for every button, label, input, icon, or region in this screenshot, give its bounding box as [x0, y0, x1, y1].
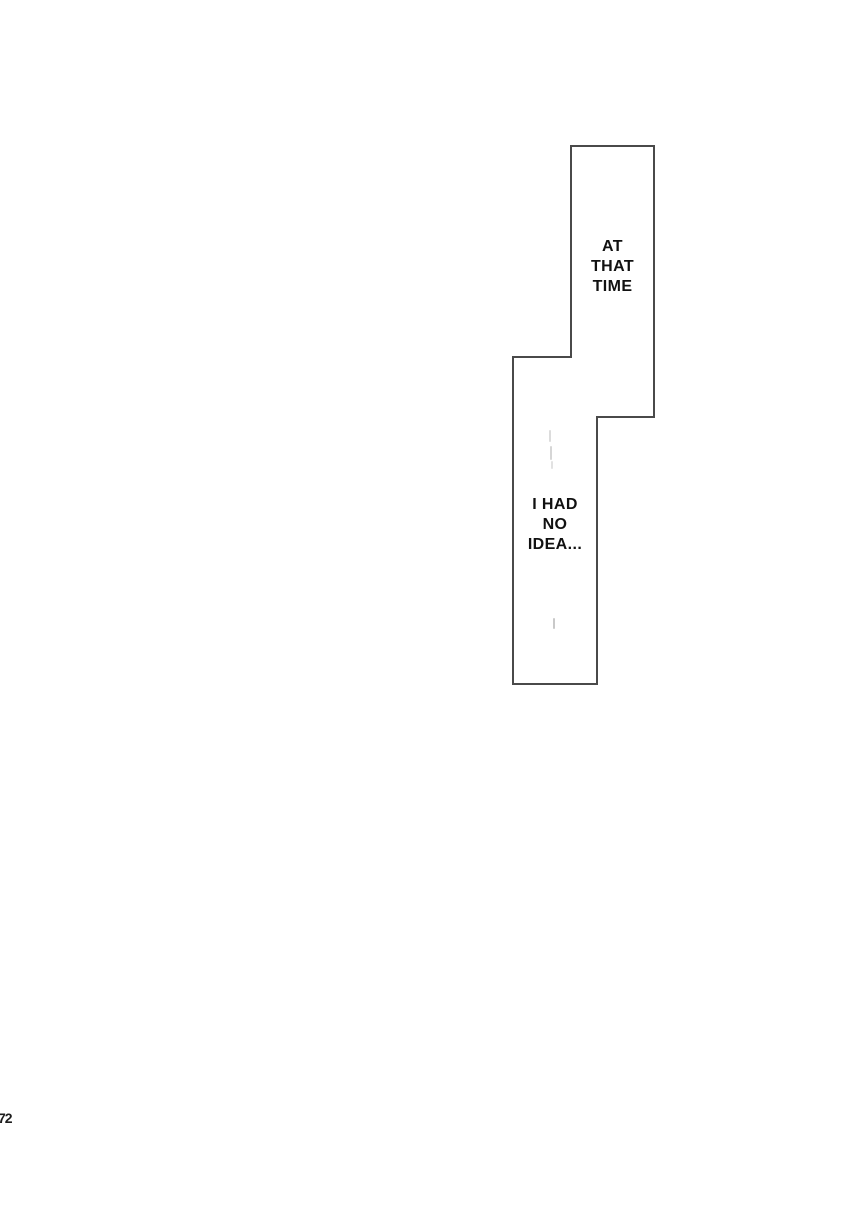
manga-page: AT THAT TIME I HAD NO IDEA... 72: [0, 0, 860, 1214]
faint-eraser-mark: [550, 446, 552, 460]
caption-line: AT: [570, 237, 655, 257]
caption-line: I HAD: [512, 495, 598, 515]
page-number: 72: [0, 1110, 12, 1126]
caption-at-that-time: AT THAT TIME: [570, 237, 655, 297]
caption-line: NO: [512, 515, 598, 535]
speech-panel-outline: [0, 0, 860, 1214]
speech-panel-shape: [513, 146, 654, 684]
caption-line: THAT: [570, 257, 655, 277]
faint-eraser-mark: [549, 430, 551, 442]
caption-i-had-no-idea: I HAD NO IDEA...: [512, 495, 598, 555]
caption-line: IDEA...: [512, 535, 598, 555]
caption-line: TIME: [570, 277, 655, 297]
faint-eraser-mark: [551, 461, 553, 469]
faint-eraser-mark: [553, 618, 555, 629]
